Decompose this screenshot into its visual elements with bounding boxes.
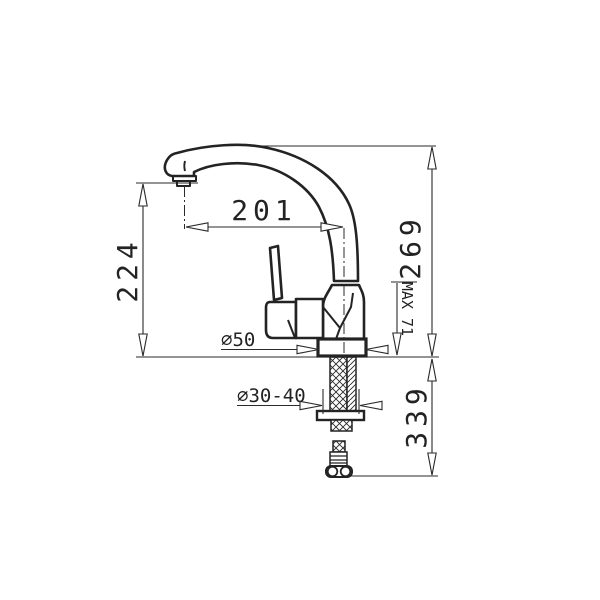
faucet-technical-drawing: 201 224 269 339 MAX 71 ∅50 ∅30-40 (0, 0, 600, 600)
dim-outlet-height: 224 (111, 184, 144, 356)
mounting-hardware (317, 357, 364, 477)
faucet-outline (165, 145, 366, 356)
drawing-canvas: 201 224 269 339 MAX 71 ∅50 ∅30-40 (0, 0, 600, 600)
connector-nut-circle (328, 467, 338, 477)
base-flange (318, 339, 366, 356)
dim-label-dia3040: ∅30-40 (237, 385, 306, 407)
supply-hose (330, 357, 347, 412)
dim-label-201: 201 (231, 194, 297, 227)
dim-label-224: 224 (111, 237, 144, 303)
spout-accent-line (184, 161, 185, 171)
threaded-stud (347, 357, 356, 412)
handle-grip (266, 302, 296, 338)
connector-nut-circle (341, 467, 351, 477)
body-front-face (296, 299, 323, 338)
dim-max-deck-thickness: MAX 71 (391, 282, 417, 355)
mounting-nut (331, 420, 352, 431)
dim-label-dia50: ∅50 (221, 329, 255, 351)
dim-label-339: 339 (400, 383, 433, 449)
handle-lever (270, 246, 282, 300)
connector-top (333, 441, 345, 452)
dim-label-269: 269 (394, 214, 427, 280)
hose-connector (326, 441, 352, 477)
aerator (173, 176, 196, 186)
mounting-washer (317, 411, 364, 420)
dim-label-max71: MAX 71 (398, 282, 416, 336)
dim-below-counter: 339 (400, 359, 433, 475)
